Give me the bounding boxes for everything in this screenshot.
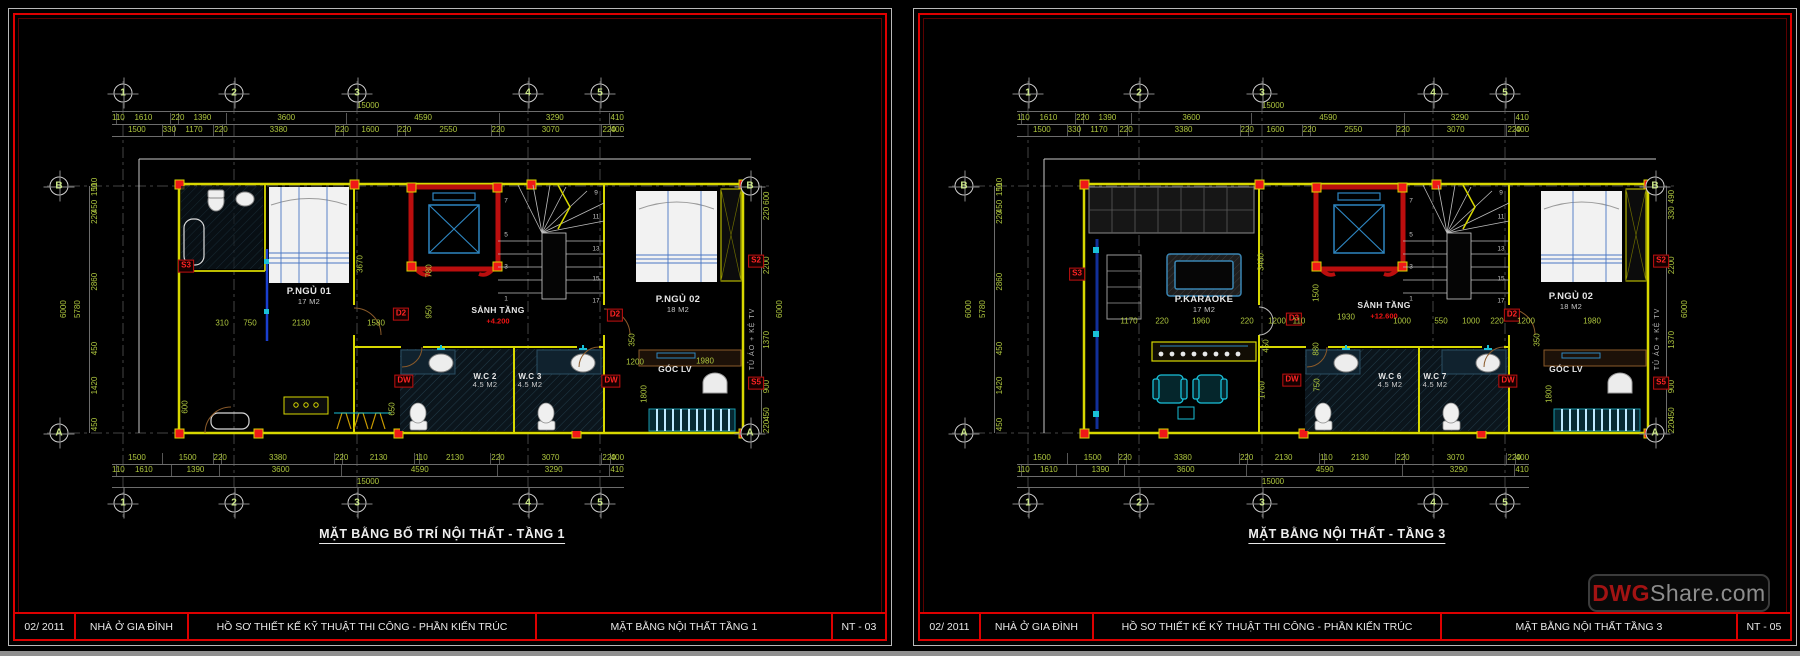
grid-bubble-1-top: 1 — [114, 84, 133, 103]
dim-value: 2550 — [1311, 125, 1396, 136]
dim-value: 4590 — [342, 465, 498, 476]
dim-value: 3290 — [1405, 113, 1515, 124]
titleblock-project: NHÀ Ở GIA ĐÌNH — [981, 614, 1094, 639]
dim-left-overall-2: 5780 — [978, 186, 989, 433]
dim-value: 2130 — [420, 453, 492, 464]
dim-left-overall-1: 6000 — [964, 186, 975, 433]
dim-value: 220 — [90, 215, 101, 224]
grid-bubble-A-right: A — [741, 424, 760, 443]
dim-value: 3070 — [500, 125, 603, 136]
dim-value: 220 — [1396, 453, 1404, 464]
dim-value: 1610 — [1022, 113, 1076, 124]
dim-value: 1610 — [117, 113, 171, 124]
dim-bottom-row1: 1500150022033802202130110213022030702204… — [1017, 453, 1529, 465]
dim-value: 220 — [214, 125, 222, 136]
dim-value: 220 — [491, 453, 499, 464]
dim-bottom-row1: 1500150022033802202130110213022030702204… — [112, 453, 624, 465]
dim-top-overall: 15000 — [112, 101, 624, 112]
sheet-floor1: 1 2 3 4 5 1 2 3 4 5 B A B A 15000 110161… — [8, 8, 892, 646]
dim-value: 400 — [1516, 453, 1529, 464]
dim-value: 1500 — [1017, 453, 1068, 464]
dim-value: 410 — [610, 465, 624, 476]
dim-value: 150 — [995, 190, 1006, 196]
dim-value: 400 — [611, 453, 624, 464]
dim-value: 220 — [171, 113, 179, 124]
dim-value: 220 — [1119, 125, 1127, 136]
dim-value: 220 — [1303, 125, 1311, 136]
grid-bubble-4-top: 4 — [519, 84, 538, 103]
dim-value: 220 — [1119, 453, 1127, 464]
dim-top-row3: 1500330117022033802201600220255022030702… — [1017, 125, 1529, 137]
plan-title-floor1: MẶT BẰNG BỐ TRÍ NỘI THẤT - TẦNG 1 — [319, 527, 565, 544]
grid-bubble-2-top: 2 — [1130, 84, 1149, 103]
dim-value: 2130 — [343, 453, 415, 464]
dim-value: 220 — [335, 453, 343, 464]
dim-left-overall-2: 5780 — [73, 186, 84, 433]
grid-bubble-4-top: 4 — [1424, 84, 1443, 103]
grid-bubble-5-top: 5 — [1496, 84, 1515, 103]
titleblock-date: 02/ 2011 — [920, 614, 981, 639]
grid-bubble-1-bottom: 1 — [114, 494, 133, 513]
dim-value: 4590 — [1247, 465, 1403, 476]
dim-value: 2200 — [1667, 220, 1678, 311]
grid-bubble-2-bottom: 2 — [225, 494, 244, 513]
dim-value: 1600 — [344, 125, 398, 136]
dim-left-overall-1: 6000 — [59, 186, 70, 433]
grid-bubble-3-bottom: 3 — [1253, 494, 1272, 513]
dim-value: 220 — [762, 211, 773, 220]
dim-value: 220 — [336, 125, 344, 136]
grid-bubble-2-top: 2 — [225, 84, 244, 103]
dim-value: 2130 — [1325, 453, 1397, 464]
dim-value: 1390 — [179, 113, 226, 124]
grid-bubble-5-bottom: 5 — [1496, 494, 1515, 513]
dim-value: 220 — [1397, 125, 1405, 136]
dim-value: 2860 — [90, 224, 101, 340]
dim-value: 3380 — [1127, 453, 1240, 464]
watermark-suffix: Share.com — [1650, 580, 1766, 607]
bottom-edge-strip — [0, 651, 1800, 656]
dim-value: 450 — [995, 415, 1006, 433]
dim-value: 1370 — [1667, 311, 1678, 368]
grid-bubble-A-right: A — [1646, 424, 1665, 443]
dim-value: 220 — [1667, 424, 1678, 433]
dim-value: 2860 — [995, 224, 1006, 340]
dim-value: 1500 — [112, 453, 163, 464]
dim-value: 400 — [611, 125, 624, 136]
dim-value: 3600 — [1125, 465, 1247, 476]
grid-bubble-B-right: B — [1646, 177, 1665, 196]
dim-value: 220 — [1076, 113, 1084, 124]
dim-value: 330 — [163, 125, 175, 136]
dim-value: 220 — [214, 453, 222, 464]
titleblock-drawing-name: MẶT BẰNG NỘI THẤT TẦNG 1 — [537, 614, 833, 639]
dim-value: 1390 — [1077, 465, 1125, 476]
dim-value: 1600 — [1249, 125, 1303, 136]
dim-value: 3070 — [500, 453, 603, 464]
dim-value: 220 — [602, 453, 610, 464]
dim-value: 490 — [1667, 186, 1678, 206]
dim-bottom-row2: 11016101390360045903290410 — [112, 465, 624, 477]
dim-right-chain: 60022022001370900450220 — [761, 186, 774, 433]
dim-value: 220 — [995, 215, 1006, 224]
dim-value: 900 — [762, 368, 773, 405]
dim-value: 3290 — [1403, 465, 1515, 476]
dim-value: 1500 — [163, 453, 214, 464]
dim-value: 1170 — [175, 125, 215, 136]
dim-value: 1610 — [1022, 465, 1077, 476]
dim-top-row3: 1500330117022033802201600220255022030702… — [112, 125, 624, 137]
titleblock-sheet-number: NT - 05 — [1738, 614, 1790, 639]
grid-bubble-B-left: B — [955, 177, 974, 196]
dim-value: 2200 — [762, 220, 773, 311]
dim-value: 400 — [1516, 125, 1529, 136]
dim-value: 150 — [90, 190, 101, 196]
grid-bubble-4-bottom: 4 — [519, 494, 538, 513]
dim-value: 220 — [1241, 125, 1249, 136]
grid-bubble-A-left: A — [955, 424, 974, 443]
titleblock-drawing-name: MẶT BẰNG NỘI THẤT TẦNG 3 — [1442, 614, 1738, 639]
dim-value: 330 — [1667, 206, 1678, 220]
titleblock-project: NHÀ Ở GIA ĐÌNH — [76, 614, 189, 639]
titleblock-dossier: HỒ SƠ THIẾT KẾ KỸ THUẬT THI CÔNG - PHẦN … — [189, 614, 537, 639]
dim-value: 3070 — [1405, 125, 1508, 136]
dim-value: 410 — [610, 113, 624, 124]
dim-value: 1420 — [995, 357, 1006, 414]
dim-value: 4590 — [347, 113, 500, 124]
dim-value: 410 — [1515, 113, 1529, 124]
grid-bubble-B-right: B — [741, 177, 760, 196]
dim-value: 1500 — [1068, 453, 1119, 464]
dim-value: 2130 — [1248, 453, 1320, 464]
dim-value: 1610 — [117, 465, 172, 476]
dim-value: 450 — [995, 339, 1006, 357]
dim-value: 220 — [1507, 453, 1515, 464]
dim-value: 410 — [1515, 465, 1529, 476]
dim-value: 3600 — [227, 113, 347, 124]
titleblock-date: 02/ 2011 — [15, 614, 76, 639]
grid-bubble-2-bottom: 2 — [1130, 494, 1149, 513]
dim-value: 3070 — [1405, 453, 1508, 464]
grid-bubble-5-top: 5 — [591, 84, 610, 103]
dim-top-row2: 11016102201390360045903290410 — [112, 113, 624, 125]
grid-bubble-5-bottom: 5 — [591, 494, 610, 513]
dim-value: 1390 — [1084, 113, 1131, 124]
dim-value: 1370 — [762, 311, 773, 368]
dim-value: 220 — [1507, 125, 1515, 136]
grid-bubble-4-bottom: 4 — [1424, 494, 1443, 513]
dim-value: 1500 — [112, 125, 163, 136]
dim-value: 1170 — [1080, 125, 1120, 136]
dim-value: 3600 — [220, 465, 342, 476]
dim-value: 1500 — [1017, 125, 1068, 136]
dim-value: 450 — [90, 415, 101, 433]
dim-value: 1420 — [90, 357, 101, 414]
dim-value: 3290 — [498, 465, 610, 476]
dim-bottom-overall: 15000 — [112, 477, 624, 488]
dim-value: 3380 — [222, 453, 335, 464]
grid-bubble-1-top: 1 — [1019, 84, 1038, 103]
dim-value: 220 — [762, 424, 773, 433]
titleblock-dossier: HỒ SƠ THIẾT KẾ KỸ THUẬT THI CÔNG - PHẦN … — [1094, 614, 1442, 639]
dim-value: 450 — [90, 339, 101, 357]
dim-value: 220 — [492, 125, 500, 136]
dim-right-chain: 49033022001370900450220 — [1666, 186, 1679, 433]
grid-bubble-3-top: 3 — [1253, 84, 1272, 103]
dim-value: 330 — [1068, 125, 1080, 136]
grid-bubble-B-left: B — [50, 177, 69, 196]
dim-value: 220 — [1240, 453, 1248, 464]
plan-title-floor3: MẶT BẰNG NỘI THẤT - TẦNG 3 — [1248, 527, 1445, 544]
sheet-floor3: 1 2 3 4 5 1 2 3 4 5 B A B A 15000 110161… — [913, 8, 1797, 646]
dim-left-chain: 11015045022028604501420450 — [89, 186, 102, 433]
watermark-brand: DWG — [1592, 580, 1650, 607]
dim-value: 900 — [1667, 368, 1678, 405]
dim-bottom-overall: 15000 — [1017, 477, 1529, 488]
dim-top-overall: 15000 — [1017, 101, 1529, 112]
dim-value: 220 — [602, 125, 610, 136]
dim-left-chain: 11015045022028604501420450 — [994, 186, 1007, 433]
dim-value: 2550 — [406, 125, 491, 136]
grid-bubble-1-bottom: 1 — [1019, 494, 1038, 513]
dim-bottom-row2: 11016101390360045903290410 — [1017, 465, 1529, 477]
grid-bubble-3-bottom: 3 — [348, 494, 367, 513]
dim-value: 1390 — [172, 465, 220, 476]
title-block-floor3: 02/ 2011 NHÀ Ở GIA ĐÌNH HỒ SƠ THIẾT KẾ K… — [918, 612, 1792, 641]
dim-value: 4590 — [1252, 113, 1405, 124]
cad-canvas: 1 2 3 4 5 1 2 3 4 5 B A B A 15000 110161… — [0, 0, 1800, 656]
dim-value: 3290 — [500, 113, 610, 124]
dim-value: 220 — [398, 125, 406, 136]
dwgshare-watermark: DWGShare.com — [1588, 574, 1770, 612]
dim-right-overall: 6000 — [775, 186, 786, 433]
dim-top-row2: 11016102201390360045903290410 — [1017, 113, 1529, 125]
grid-bubble-A-left: A — [50, 424, 69, 443]
titleblock-sheet-number: NT - 03 — [833, 614, 885, 639]
dim-value: 3380 — [223, 125, 336, 136]
dim-right-overall: 6000 — [1680, 186, 1691, 433]
grid-bubble-3-top: 3 — [348, 84, 367, 103]
dim-value: 3600 — [1132, 113, 1252, 124]
title-block-floor1: 02/ 2011 NHÀ Ở GIA ĐÌNH HỒ SƠ THIẾT KẾ K… — [13, 612, 887, 641]
dim-value: 3380 — [1128, 125, 1241, 136]
